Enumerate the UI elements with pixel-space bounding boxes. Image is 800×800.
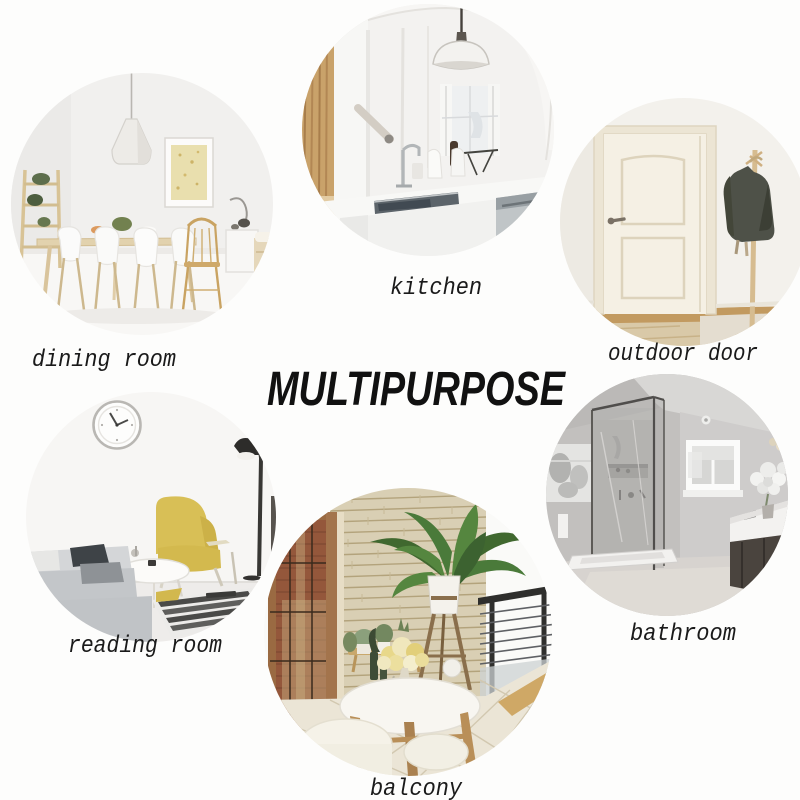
svg-text:MULTIPURPOSE: MULTIPURPOSE xyxy=(267,363,567,416)
svg-text:balcony: balcony xyxy=(370,776,463,800)
svg-text:bathroom: bathroom xyxy=(630,621,736,648)
svg-text:dining room: dining room xyxy=(32,347,176,374)
svg-text:kitchen: kitchen xyxy=(390,275,482,302)
svg-text:outdoor door: outdoor door xyxy=(608,341,758,368)
svg-text:reading room: reading room xyxy=(68,633,222,660)
